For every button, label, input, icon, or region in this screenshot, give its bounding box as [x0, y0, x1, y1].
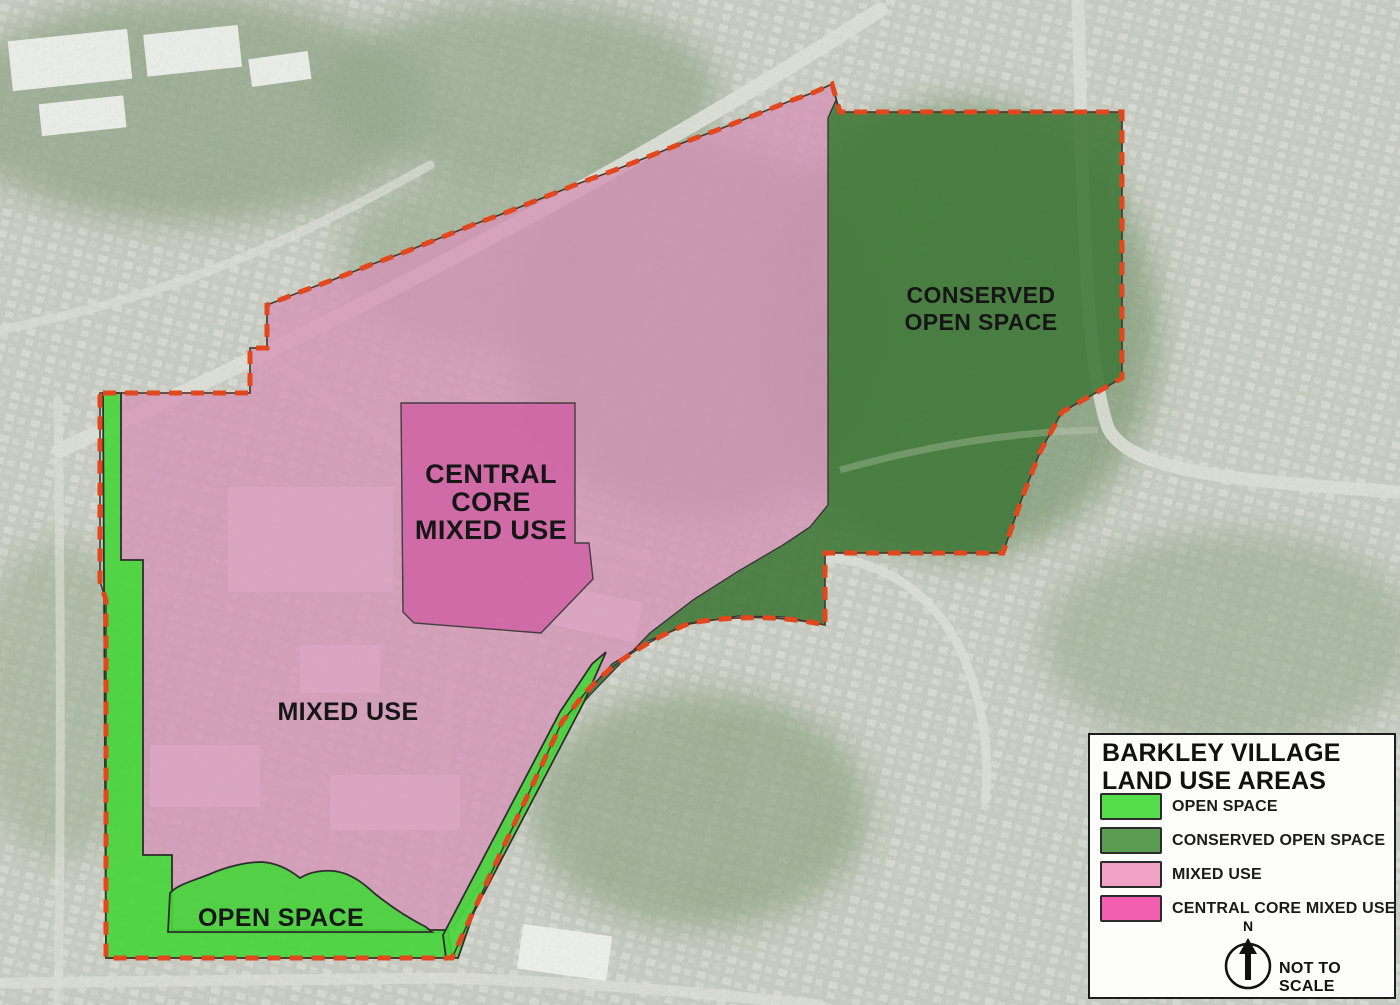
- label-conserved-open-space-line1: CONSERVED: [907, 282, 1056, 308]
- legend-item-label: CENTRAL CORE MIXED USE: [1172, 900, 1396, 918]
- legend-title: BARKLEY VILLAGE LAND USE AREAS: [1102, 739, 1341, 795]
- legend-item-label: CONSERVED OPEN SPACE: [1172, 832, 1385, 850]
- legend-title-line2: LAND USE AREAS: [1102, 767, 1341, 795]
- open-space-swatch: [1100, 793, 1162, 820]
- label-central-core-line2: CORE: [451, 487, 531, 517]
- land-use-map-screenshot: CONSERVED OPEN SPACE CENTRAL CORE MIXED …: [0, 0, 1400, 1005]
- legend-title-line1: BARKLEY VILLAGE: [1102, 739, 1341, 767]
- north-label: N: [1243, 918, 1253, 934]
- legend-item-label: OPEN SPACE: [1172, 798, 1278, 816]
- conserved-open-space-swatch: [1100, 827, 1162, 854]
- label-central-core-line1: CENTRAL: [425, 459, 557, 489]
- label-open-space: OPEN SPACE: [198, 904, 364, 932]
- label-central-core-line3: MIXED USE: [415, 515, 567, 545]
- north-arrow-shaft: [1245, 952, 1251, 980]
- legend-box: BARKLEY VILLAGE LAND USE AREAS OPEN SPAC…: [1088, 733, 1396, 999]
- mixed-use-swatch: [1100, 861, 1162, 888]
- central-core-mixed-use-swatch: [1100, 895, 1162, 922]
- legend-item-label: MIXED USE: [1172, 866, 1262, 884]
- north-arrow: N: [1218, 918, 1278, 998]
- legend-item-open-space: OPEN SPACE: [1100, 793, 1396, 820]
- legend-items: OPEN SPACE CONSERVED OPEN SPACE MIXED US…: [1100, 793, 1396, 922]
- label-mixed-use: MIXED USE: [277, 698, 418, 726]
- label-conserved-open-space-line2: OPEN SPACE: [904, 309, 1057, 335]
- not-to-scale-note: NOT TO SCALE: [1279, 960, 1394, 996]
- legend-item-conserved-open-space: CONSERVED OPEN SPACE: [1100, 827, 1396, 854]
- legend-item-mixed-use: MIXED USE: [1100, 861, 1396, 888]
